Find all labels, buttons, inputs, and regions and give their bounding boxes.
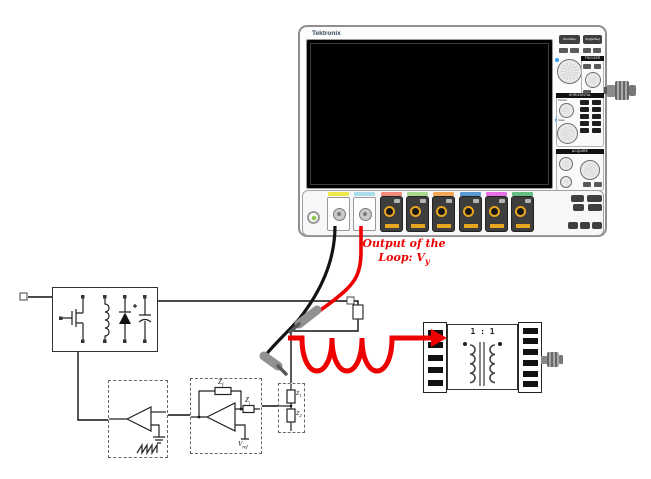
annotation-line2: Loop: Vy [348,251,460,268]
injection-arrowhead [431,329,447,347]
output-of-loop-annotation: Output of the Loop: Vy [348,237,460,268]
figure-canvas: Tektronix Run/Stop Single/Seq TRIGGER [0,0,651,479]
annotation-line1: Output of the [348,237,460,251]
cables-and-probes [0,0,651,479]
injection-signal-coil [288,338,433,371]
ch1-probe [264,356,286,374]
